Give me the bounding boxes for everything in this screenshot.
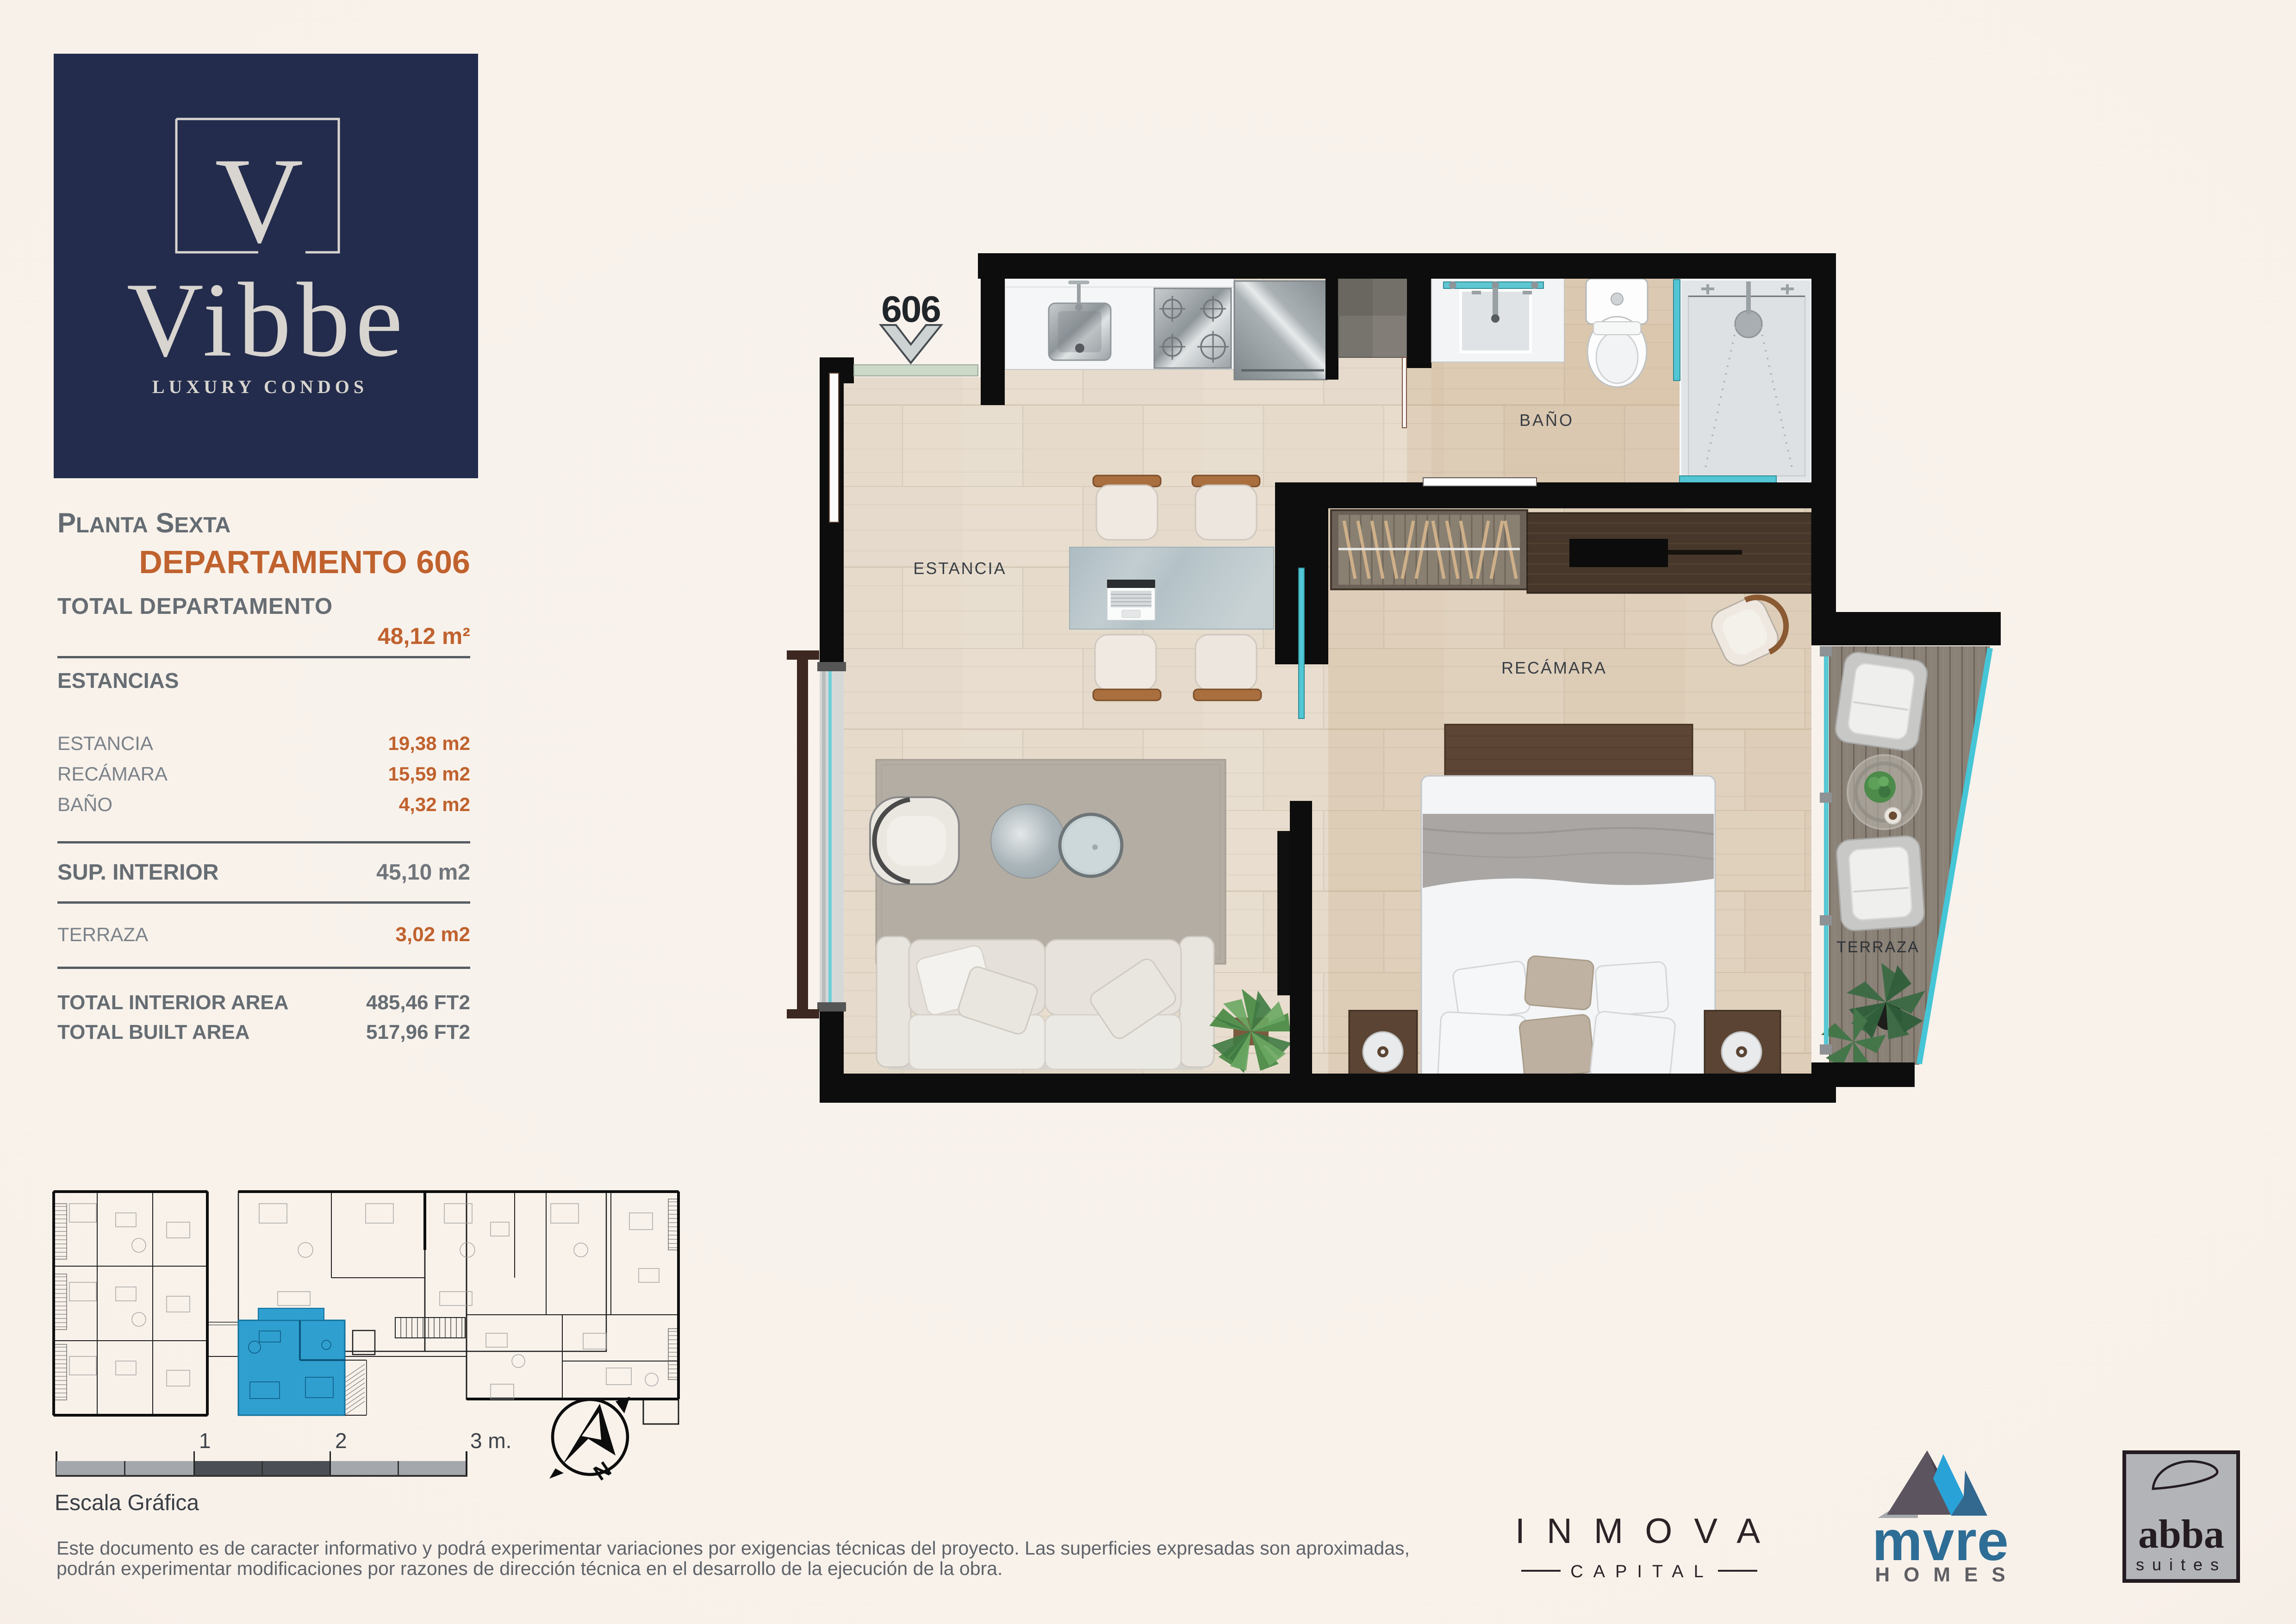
svg-text:BAÑO: BAÑO <box>57 793 112 815</box>
svg-text:Escala Gráfica: Escala Gráfica <box>55 1491 199 1515</box>
svg-text:19,38 m2: 19,38 m2 <box>388 732 470 754</box>
svg-text:mvre: mvre <box>1872 1509 2009 1572</box>
svg-text:TOTAL DEPARTAMENTO: TOTAL DEPARTAMENTO <box>57 594 333 619</box>
svg-text:DEPARTAMENTO 606: DEPARTAMENTO 606 <box>139 544 470 580</box>
svg-text:INMOVA: INMOVA <box>1515 1512 1782 1551</box>
svg-text:ESTANCIA: ESTANCIA <box>57 732 153 754</box>
svg-text:SUP. INTERIOR: SUP. INTERIOR <box>57 860 219 885</box>
svg-text:HOMES: HOMES <box>1875 1563 2019 1586</box>
svg-text:TOTAL INTERIOR AREA: TOTAL INTERIOR AREA <box>57 991 289 1014</box>
svg-text:TOTAL BUILT AREA: TOTAL BUILT AREA <box>57 1021 250 1043</box>
svg-text:3,02 m2: 3,02 m2 <box>396 923 470 946</box>
svg-text:ESTANCIA: ESTANCIA <box>913 559 1006 578</box>
svg-text:TERRAZA: TERRAZA <box>1836 938 1920 956</box>
svg-text:4,32 m2: 4,32 m2 <box>399 793 470 815</box>
svg-text:CAPITAL: CAPITAL <box>1570 1562 1714 1581</box>
svg-text:RECÁMARA: RECÁMARA <box>57 763 168 785</box>
svg-text:Este documento es de caracter: Este documento es de caracter informativ… <box>56 1537 1410 1559</box>
svg-text:Vibbe: Vibbe <box>127 261 408 379</box>
svg-text:1: 1 <box>199 1429 211 1453</box>
svg-text:V: V <box>215 133 303 269</box>
svg-text:48,12 m²: 48,12 m² <box>378 623 470 649</box>
svg-text:517,96 FT2: 517,96 FT2 <box>366 1021 470 1043</box>
svg-text:45,10 m2: 45,10 m2 <box>376 860 470 885</box>
svg-text:TERRAZA: TERRAZA <box>57 924 148 945</box>
svg-text:RECÁMARA: RECÁMARA <box>1501 658 1607 677</box>
svg-text:ESTANCIAS: ESTANCIAS <box>57 668 179 693</box>
svg-text:PLANTA SEXTA: PLANTA SEXTA <box>57 507 230 538</box>
svg-text:3 m.: 3 m. <box>470 1429 511 1453</box>
svg-text:485,46 FT2: 485,46 FT2 <box>366 991 470 1014</box>
svg-text:abba: abba <box>2138 1512 2224 1557</box>
svg-text:LUXURY CONDOS: LUXURY CONDOS <box>152 376 368 397</box>
svg-text:suites: suites <box>2136 1555 2227 1574</box>
svg-text:podrán experimentar modificaci: podrán experimentar modificaciones por r… <box>56 1558 1002 1579</box>
svg-text:15,59 m2: 15,59 m2 <box>388 763 470 785</box>
svg-text:606: 606 <box>881 288 940 330</box>
svg-text:BAÑO: BAÑO <box>1519 411 1574 430</box>
svg-text:2: 2 <box>335 1429 347 1453</box>
